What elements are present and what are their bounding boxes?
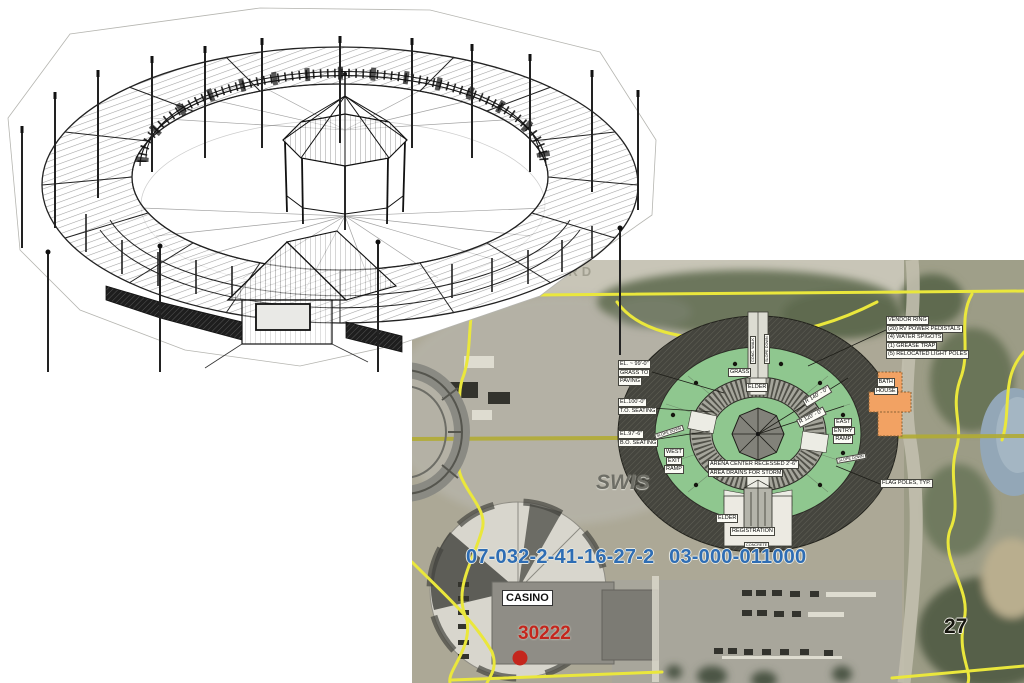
- grass-label: GRASS: [728, 368, 751, 377]
- swis-label: SWIS: [596, 471, 650, 495]
- registration-label: REGISTRATION: [730, 527, 775, 536]
- point-id-label: 30222: [518, 623, 571, 645]
- elder-south-label: ELDER: [716, 514, 738, 523]
- vendor-ring-note: VENDOR RING (20) RV POWER PEDISTALS (4) …: [886, 316, 969, 359]
- conc-walk-label: CONC. WALK: [750, 336, 756, 364]
- slope-down-north-label: SLOPE DOWN: [764, 334, 770, 364]
- section-number-label: 27: [944, 615, 967, 639]
- flag-poles-label: FLAG POLES, TYP.: [880, 479, 933, 488]
- arena-3d-rendering: [0, 0, 670, 372]
- screenshot-canvas: SMEET RD VENDOR RING (20) RV POWER PEDIS…: [0, 0, 1024, 683]
- west-exit-ramp-label: WEST EXIT RAMP: [664, 448, 684, 474]
- east-entry-ramp-label: EAST ENTRY RAMP: [832, 418, 855, 444]
- arena-center-note: ARENA CENTER RECESSED 2'-6" AREA DRAINS …: [708, 460, 799, 477]
- casino-label: CASINO: [502, 590, 553, 606]
- bath-house-label: BATH HOUSE: [874, 378, 898, 395]
- parcel-id-label: 07-032-2-41-16-27-2 03-000-011000: [466, 546, 806, 569]
- survey-point-dot: [513, 651, 528, 666]
- elevation-top-seating-label: EL.100'-0" T.O. SEATING: [618, 398, 657, 415]
- elevation-bottom-seating-label: EL.97'-6" B.O. SEATING: [618, 430, 658, 447]
- elder-north-label: ELDER: [746, 383, 768, 392]
